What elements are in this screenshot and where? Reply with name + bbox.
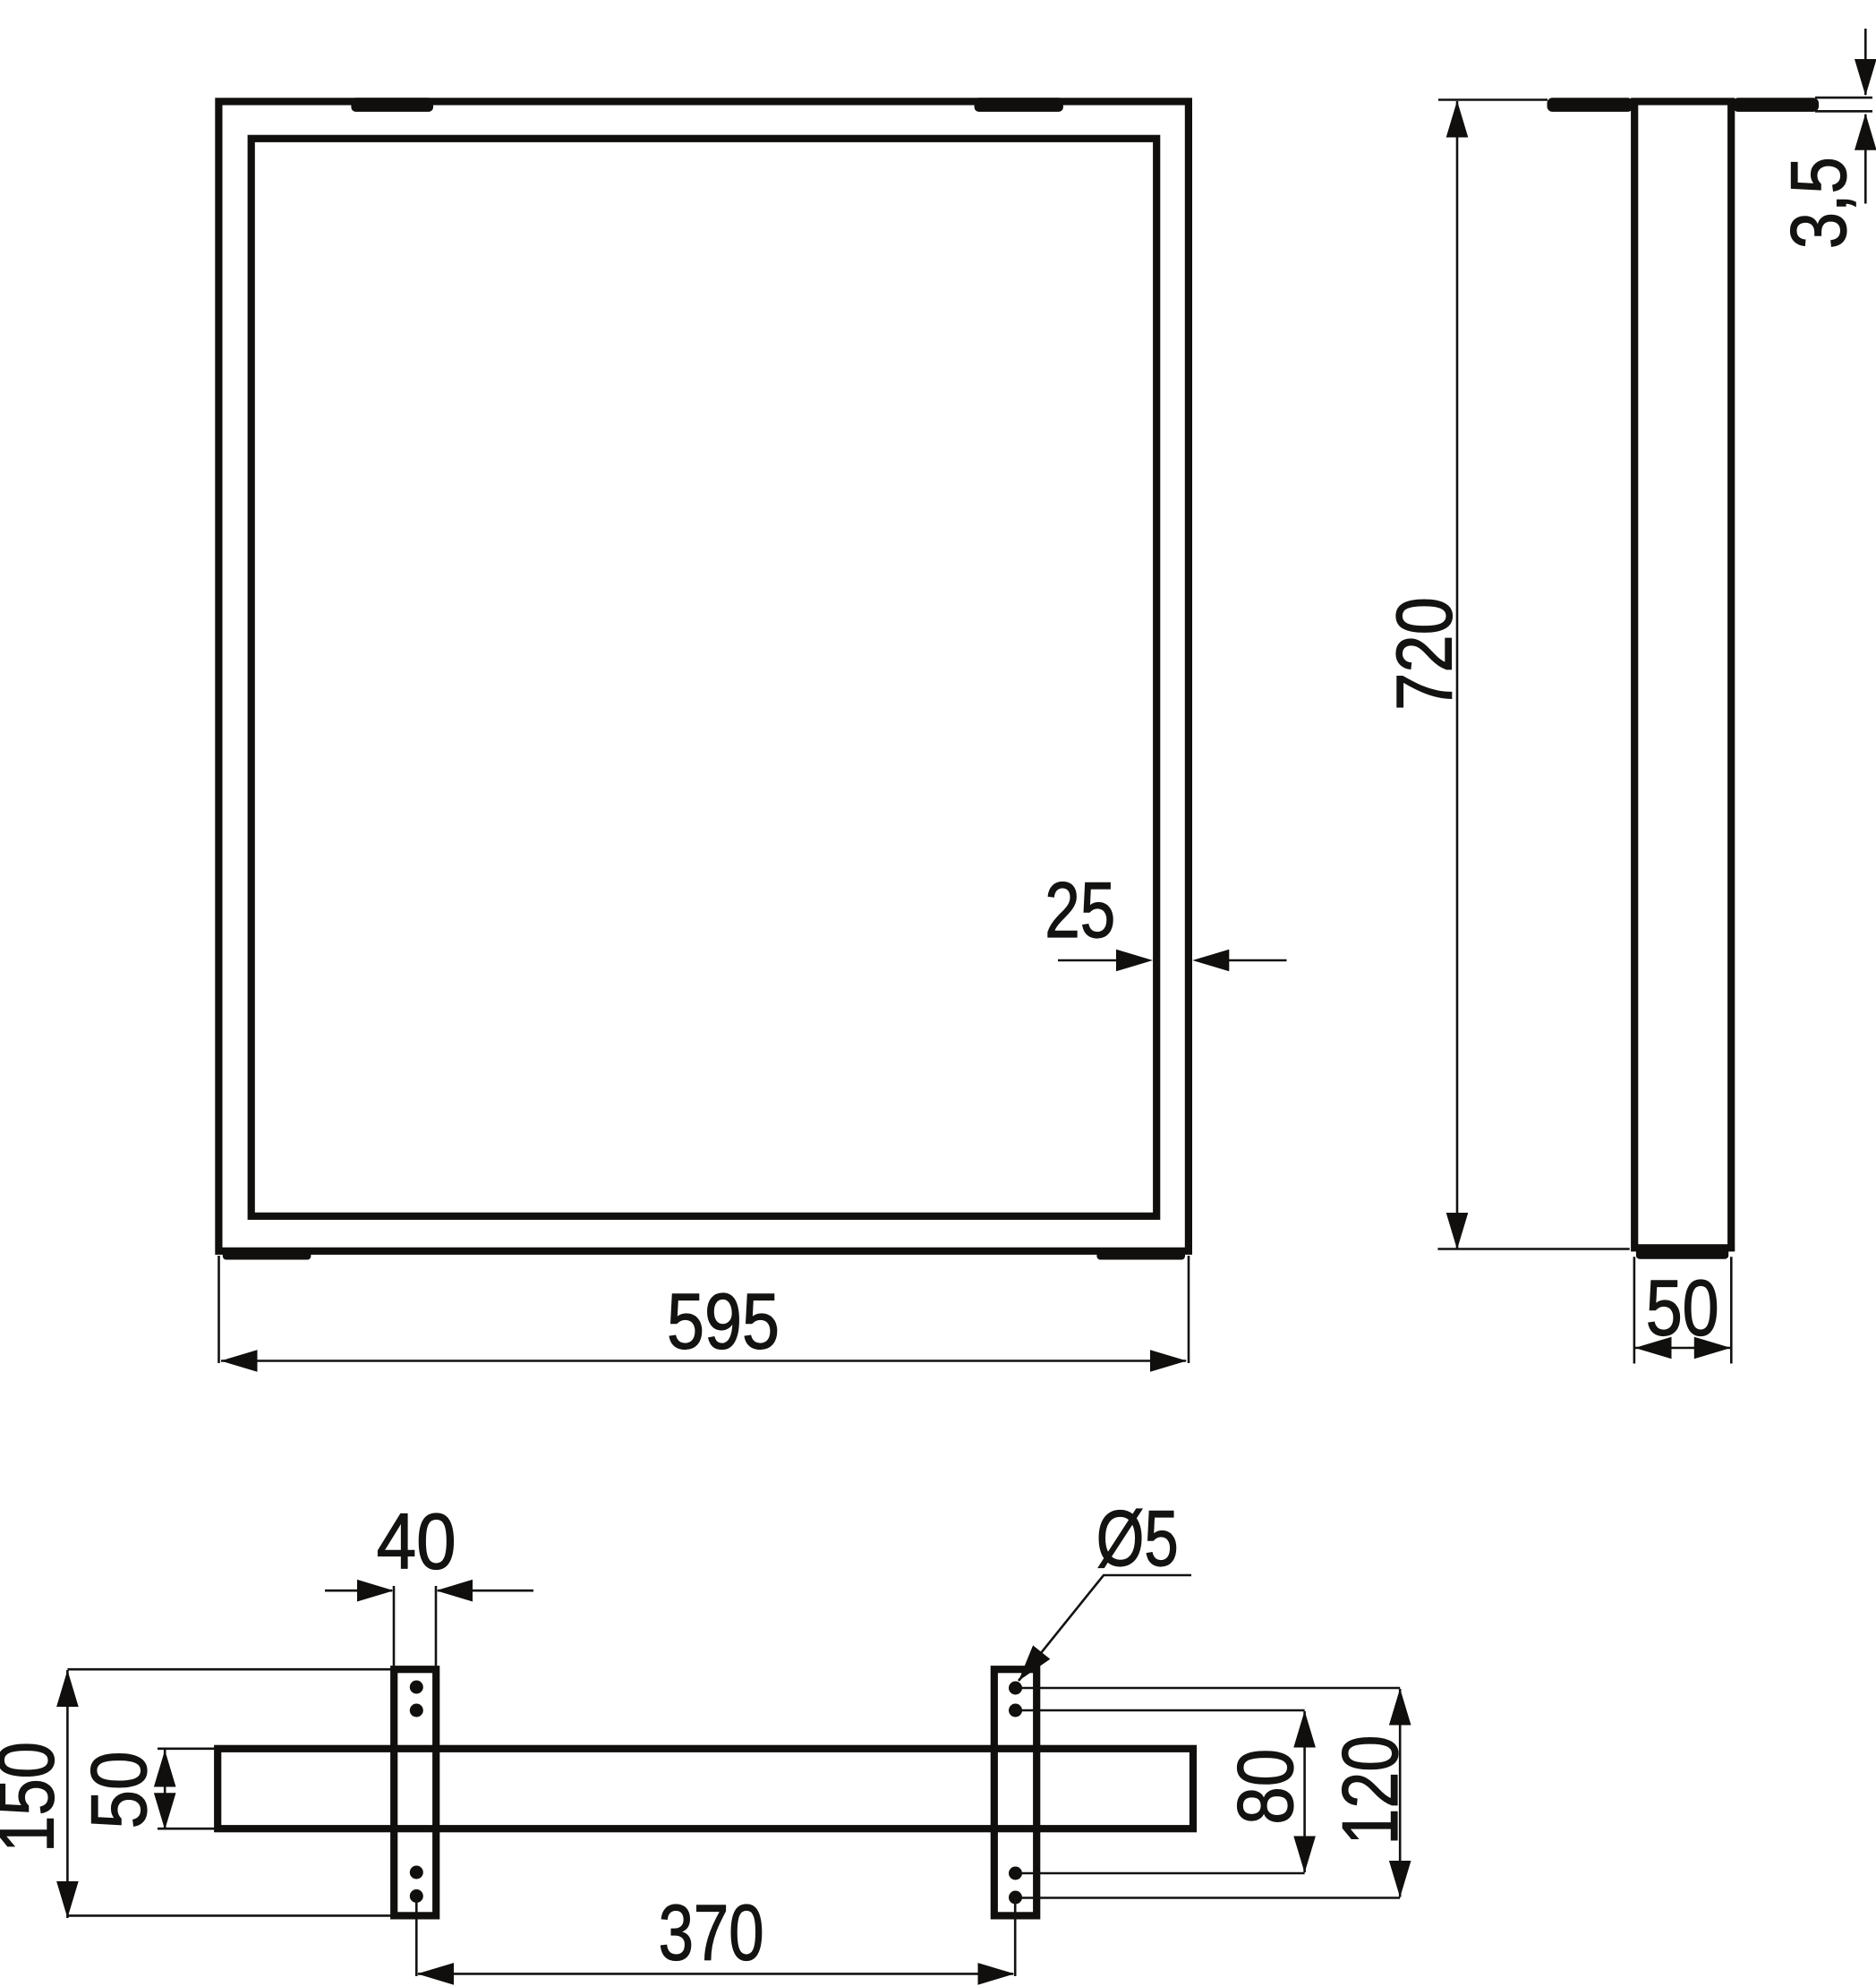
svg-text:120: 120 <box>1326 1735 1414 1845</box>
svg-text:40: 40 <box>377 1497 456 1586</box>
svg-text:150: 150 <box>0 1742 71 1853</box>
svg-text:80: 80 <box>1221 1749 1309 1825</box>
svg-text:50: 50 <box>74 1752 163 1829</box>
svg-text:Ø5: Ø5 <box>1096 1494 1179 1582</box>
svg-text:720: 720 <box>1380 597 1469 711</box>
svg-text:25: 25 <box>1045 865 1115 954</box>
svg-text:3,5: 3,5 <box>1774 157 1863 249</box>
svg-text:50: 50 <box>1646 1264 1719 1352</box>
svg-text:370: 370 <box>659 1888 764 1977</box>
svg-text:595: 595 <box>667 1277 780 1366</box>
